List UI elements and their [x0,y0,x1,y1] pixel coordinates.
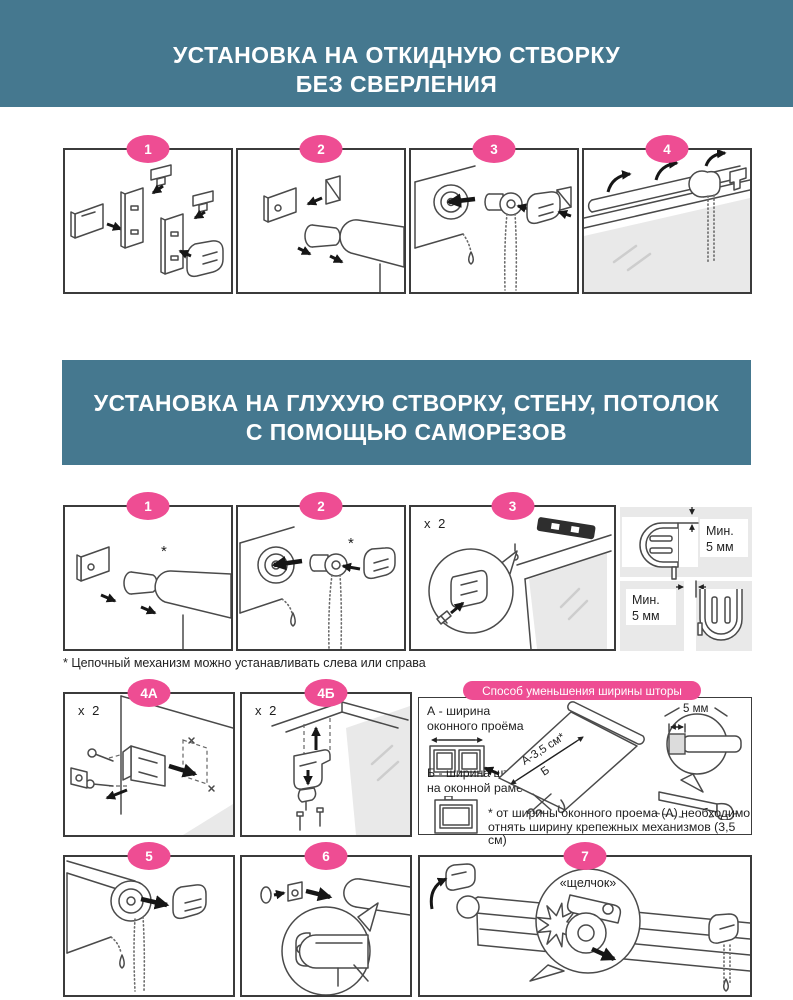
step-illustration-s2-1 [65,507,231,649]
quantity-label: x 2 [78,703,101,718]
window-frame-diagram [433,796,479,834]
step-box-3-chain-pin: 3 [409,148,579,294]
step-badge: 3 [473,135,516,163]
click-label: «щелчок» [560,876,617,890]
step-badge: 5 [128,842,171,870]
step-illustration-chain-pin [411,150,577,292]
step-box-4b: 4Б x 2 [240,692,412,837]
step-illustration-clips [65,150,231,292]
step-illustration-click: «щелчок» [420,857,750,995]
step-illustration-5 [65,857,233,995]
step-box-6: 6 [240,855,412,997]
section1-title-line2: БЕЗ СВЕРЛЕНИЯ [296,70,497,99]
section1-title-line1: УСТАНОВКА НА ОТКИДНУЮ СТВОРКУ [173,41,620,70]
step-illustration-adapter [238,150,404,292]
step-badge: 7 [564,842,607,870]
step-box-5: 5 [63,855,235,997]
min-value: 5 мм [706,540,734,554]
min-label: Мин. [632,593,660,607]
step-badge: 4А [128,679,171,707]
dimension-detail-label: 5 мм [683,703,708,715]
step-box-s2-3: 3 x 2 [409,505,616,651]
step-box-2-adapter: 2 [236,148,406,294]
quantity-label: x 2 [255,703,278,718]
step-box-7: 7 «щелчок» [418,855,752,997]
tube-cutting-diagram: 5 мм [653,700,747,820]
step-badge: 2 [300,135,343,163]
step-badge: 6 [305,842,348,870]
footnote-marker: * [348,535,354,552]
quantity-label: x 2 [424,516,447,531]
step-badge: 1 [127,135,170,163]
step-badge: 4Б [305,679,348,707]
step-illustration-s2-2 [238,507,404,649]
clearance-diagram: Мин. 5 мм Мин. 5 мм [620,505,752,651]
step-box-s2-1: 1 * [63,505,233,651]
step-box-4a: 4А x 2 [63,692,235,837]
step-illustration-tilt [584,150,750,292]
step-box-s2-2: 2 * [236,505,406,651]
fabric-cutting-diagram: А-3,5 см* Б [481,700,651,814]
width-reduction-block: А - ширина оконного проёма Б - ширина шт… [418,697,752,835]
instruction-sheet: УСТАНОВКА НА ОТКИДНУЮ СТВОРКУ БЕЗ СВЕРЛЕ… [0,0,793,1000]
step-illustration-6 [242,857,410,995]
section1-title-banner: УСТАНОВКА НА ОТКИДНУЮ СТВОРКУ БЕЗ СВЕРЛЕ… [0,0,793,107]
min-value: 5 мм [632,609,660,623]
clearance-panel: Мин. 5 мм Мин. 5 мм [620,505,752,651]
step-badge: 2 [300,492,343,520]
chain-footnote: * Цепочный механизм можно устанавливать … [63,656,426,670]
section2-title-line2: С ПОМОЩЬЮ САМОРЕЗОВ [246,418,567,447]
step-box-1-clips: 1 [63,148,233,294]
section2-title-banner: УСТАНОВКА НА ГЛУХУЮ СТВОРКУ, СТЕНУ, ПОТО… [62,360,751,465]
section2-title-line1: УСТАНОВКА НА ГЛУХУЮ СТВОРКУ, СТЕНУ, ПОТО… [94,389,719,418]
step-badge: 4 [646,135,689,163]
min-label: Мин. [706,524,734,538]
step-badge: 1 [127,492,170,520]
width-reduction-banner: Способ уменьшения ширины шторы [463,681,701,700]
width-footnote: * от ширины оконного проема (А) необходи… [488,807,751,848]
footnote-marker: * [161,543,167,560]
step-box-4-tilt: 4 [582,148,752,294]
step-badge: 3 [491,492,534,520]
